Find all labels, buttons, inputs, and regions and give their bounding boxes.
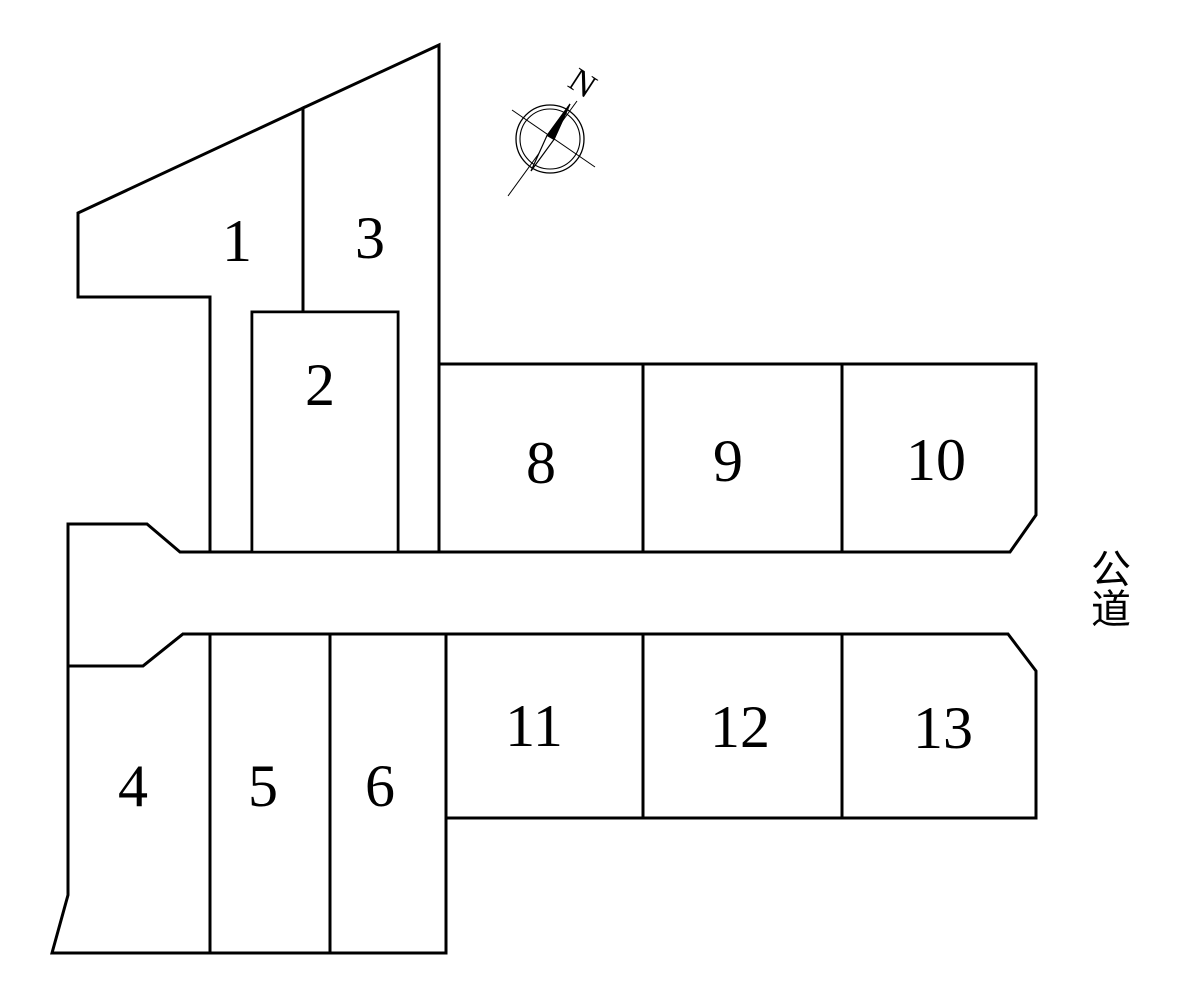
lot-label-9: 9 [713, 431, 743, 491]
lot-label-6: 6 [365, 756, 395, 816]
lot-label-8: 8 [526, 433, 556, 493]
compass-rose [508, 101, 595, 196]
lot-label-12: 12 [710, 697, 770, 757]
road-label: 公道 [1087, 548, 1127, 628]
lot-label-11: 11 [505, 696, 563, 756]
lot-label-3: 3 [355, 208, 385, 268]
plot-plan-drawing [0, 0, 1177, 1000]
lot-label-13: 13 [913, 698, 973, 758]
lot-shape-2 [252, 312, 398, 552]
plot-plan-canvas: 1 2 3 4 5 6 8 9 10 11 12 13 公道 N [0, 0, 1177, 1000]
lot-label-4: 4 [118, 756, 148, 816]
lot-label-10: 10 [906, 430, 966, 490]
lot-label-1: 1 [222, 211, 252, 271]
lot-label-5: 5 [248, 756, 278, 816]
lot-label-2: 2 [305, 355, 335, 415]
